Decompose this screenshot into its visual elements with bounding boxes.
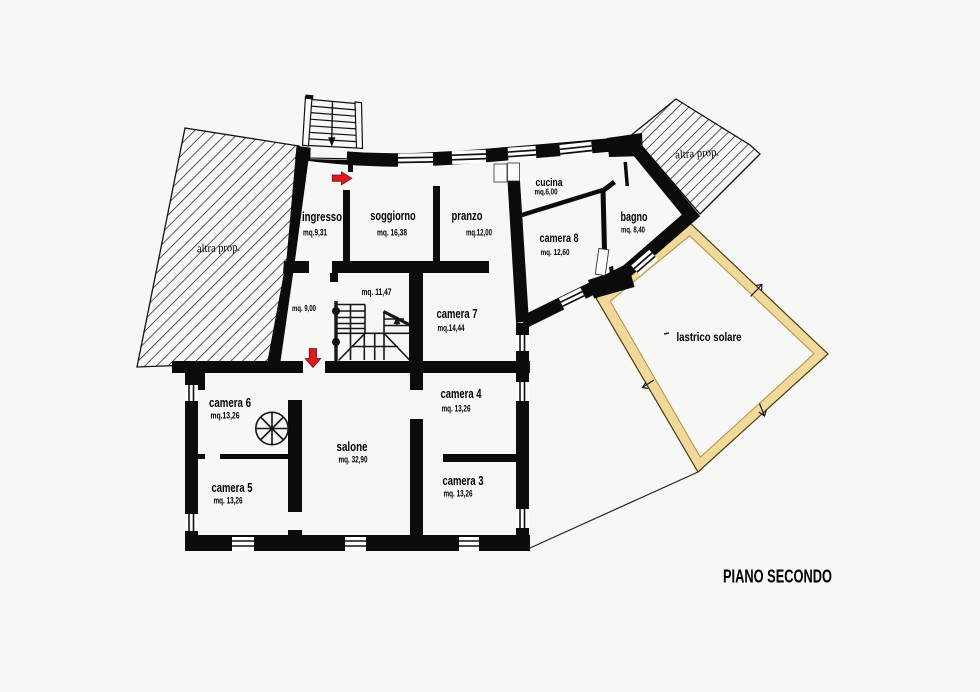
svg-text:pranzo: pranzo <box>452 209 483 223</box>
svg-text:mq.6,00: mq.6,00 <box>535 187 558 197</box>
svg-text:soggiorno: soggiorno <box>370 209 416 223</box>
svg-text:mq. 13,26: mq. 13,26 <box>442 404 471 414</box>
svg-text:camera 7: camera 7 <box>437 307 478 321</box>
svg-text:salone: salone <box>337 440 368 454</box>
svg-text:altra prop.: altra prop. <box>197 240 240 255</box>
svg-text:ingresso: ingresso <box>302 210 342 224</box>
svg-text:mq. 13,26: mq. 13,26 <box>214 496 243 506</box>
svg-text:lastrico solare: lastrico solare <box>677 330 742 344</box>
svg-text:mq.14,44: mq.14,44 <box>438 323 465 333</box>
svg-text:camera 8: camera 8 <box>540 231 579 245</box>
svg-text:mq. 32,90: mq. 32,90 <box>339 455 368 465</box>
svg-text:camera 4: camera 4 <box>441 387 482 401</box>
svg-text:mq.9,31: mq.9,31 <box>303 228 327 238</box>
svg-text:mq. 12,60: mq. 12,60 <box>541 247 570 257</box>
svg-text:PIANO SECONDO: PIANO SECONDO <box>723 566 832 587</box>
svg-text:mq.12,00: mq.12,00 <box>466 228 492 238</box>
svg-text:camera 3: camera 3 <box>443 474 484 488</box>
svg-text:mq. 13,26: mq. 13,26 <box>444 489 473 499</box>
svg-text:bagno: bagno <box>621 210 648 224</box>
svg-text:camera 6: camera 6 <box>209 396 251 410</box>
svg-text:mq. 8,40: mq. 8,40 <box>621 225 645 235</box>
svg-text:mq. 16,38: mq. 16,38 <box>377 228 407 238</box>
svg-text:camera 5: camera 5 <box>212 481 253 495</box>
svg-text:mq. 11,47: mq. 11,47 <box>362 287 392 297</box>
svg-text:mq. 9,00: mq. 9,00 <box>292 303 316 313</box>
svg-text:mq.13,26: mq.13,26 <box>211 411 240 421</box>
